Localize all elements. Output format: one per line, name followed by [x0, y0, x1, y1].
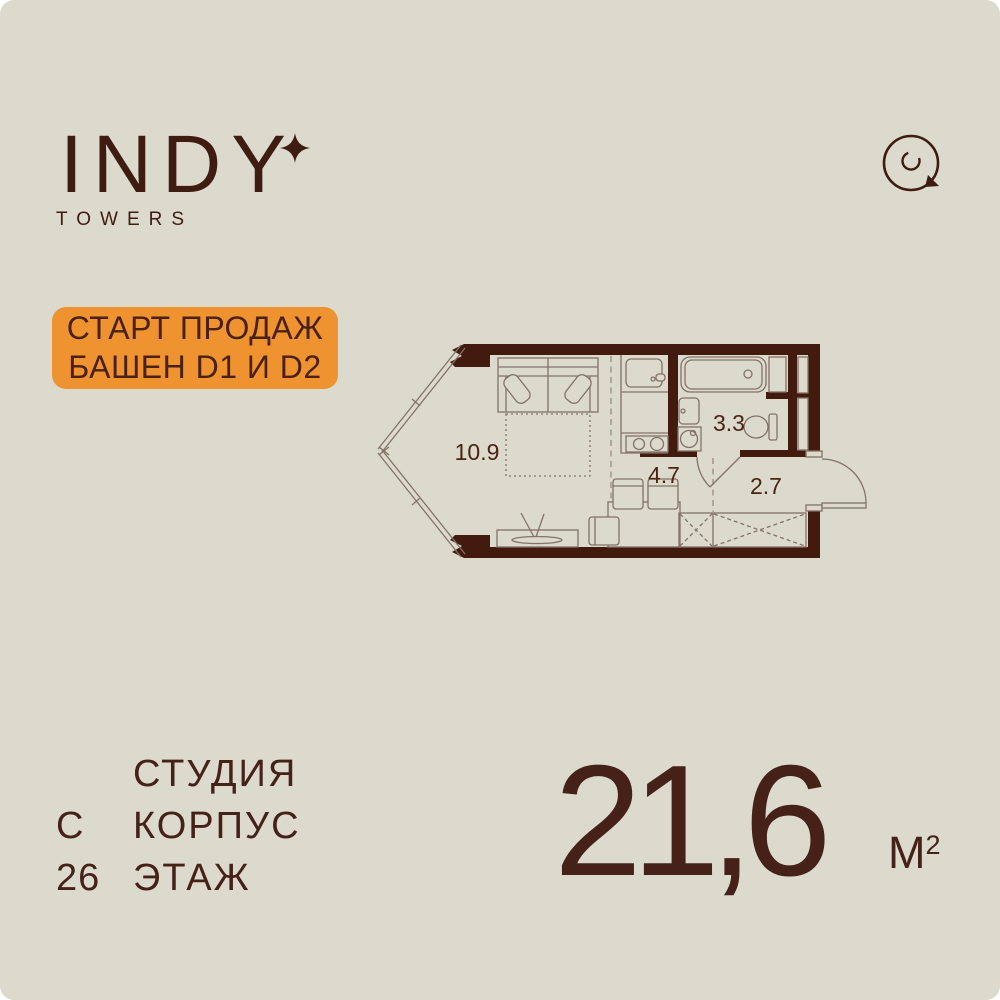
washing-machine [678, 427, 701, 451]
unit-letter: М [888, 827, 926, 878]
promo-badge-line2: БАШЕН D1 И D2 [68, 348, 321, 387]
building-label: КОРПУС [133, 805, 301, 847]
floor-label: ЭТАЖ [133, 857, 251, 899]
unit-exponent: 2 [926, 830, 941, 860]
tv-console [497, 513, 578, 547]
floor-value: 26 [56, 852, 133, 904]
type-label: СТУДИЯ [133, 753, 297, 795]
bath-sink [679, 398, 699, 424]
stove [626, 436, 668, 452]
brand-tagline: TOWERS [56, 209, 193, 231]
bathroom-door [697, 457, 740, 487]
total-area-value: 21,6 [554, 742, 822, 900]
hallway-area: 2.7 [750, 473, 782, 499]
total-area-unit: М2 [888, 830, 941, 875]
bay-window [378, 345, 465, 557]
toilet [744, 414, 777, 440]
brand-logo: INDY [60, 118, 296, 212]
sparkle-icon [280, 133, 310, 163]
listing-card[interactable]: INDY TOWERS СТАРТ ПРОДАЖ БАШЕН D1 И D2 [0, 0, 1000, 1000]
sofa-bed [498, 358, 598, 476]
detail-row-building: СКОРПУС [56, 800, 301, 852]
entrance-door [806, 451, 866, 511]
detail-row-floor: 26ЭТАЖ [56, 852, 301, 904]
detail-row-type: СТУДИЯ [56, 748, 301, 800]
promo-badge: СТАРТ ПРОДАЖ БАШЕН D1 И D2 [52, 307, 338, 389]
bathroom-area: 3.3 [713, 410, 745, 436]
compass-icon [876, 128, 946, 198]
wardrobe [679, 513, 806, 547]
kitchen-sink [626, 359, 662, 387]
dining-set [589, 479, 680, 547]
bathtub [681, 357, 766, 392]
kitchen-counter [621, 355, 668, 453]
building-value: С [56, 800, 133, 852]
apartment-details: СТУДИЯ СКОРПУС 26ЭТАЖ [56, 748, 301, 904]
living-room-area: 10.9 [455, 439, 500, 465]
floorplan: 10.9 4.7 3.3 2.7 [372, 336, 874, 568]
promo-badge-line1: СТАРТ ПРОДАЖ [67, 309, 324, 348]
kitchen-area: 4.7 [648, 462, 680, 488]
bed-projection [506, 414, 590, 476]
